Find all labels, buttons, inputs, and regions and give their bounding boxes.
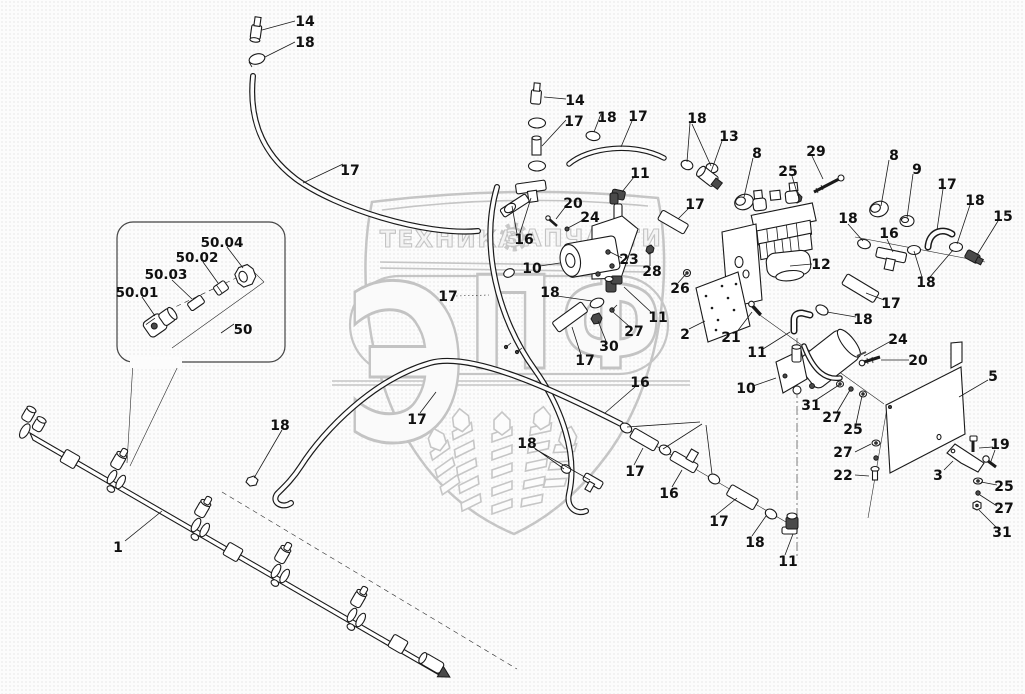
bottom-chain [560,421,798,534]
part-label: 21 [721,330,740,346]
cap-nut-50-04 [233,263,258,288]
parts-diagram-page: ТЕХНИКА ЗАПЧАСТИ Э ПФ [0,0,1025,694]
part-label: 24 [888,332,908,348]
part-label: 18 [597,110,616,126]
part-label: 27 [833,445,852,461]
part-label: 17 [685,197,704,213]
part-label: 24 [580,210,600,226]
part-label: 16 [879,226,898,242]
part-label: 3 [933,468,943,484]
part-label: 10 [736,381,756,397]
part-label: 17 [937,177,956,193]
nut-30 [591,313,602,324]
part-label: 10 [522,261,542,277]
part-label: 27 [994,501,1013,517]
part-label: 17 [625,464,644,480]
part-label: 5 [988,369,998,385]
part-label: 25 [778,164,797,180]
watermark-brand-letter: Э [344,242,467,492]
parts-diagram: ТЕХНИКА ЗАПЧАСТИ Э ПФ [0,0,1025,694]
part-label: 30 [599,339,619,355]
clamp-18b [585,130,600,141]
svg-text:Э: Э [344,242,467,492]
part-label: 2 [680,327,690,343]
part-label: 12 [811,257,830,273]
part-label: 17 [564,114,583,130]
fitting-15 [964,249,984,265]
nut-18j [246,476,258,486]
part-label: 1 [113,540,123,556]
bolt-20b [859,357,880,366]
part-label: 14 [295,14,315,30]
bushing-8b [868,199,891,220]
part-label: 8 [889,148,899,164]
part-label: 18 [838,211,857,227]
part-label: 18 [270,418,289,434]
clamp-18a [248,52,266,66]
part-label: 29 [806,144,825,160]
part-label: 50.02 [176,250,219,266]
tee-16b [873,247,907,273]
bolt-20a [546,216,557,226]
part-label: 9 [912,162,922,178]
part-label: 17 [407,412,426,428]
part-label: 25 [843,422,862,438]
part-label: 11 [648,310,667,326]
part-label: 18 [745,535,764,551]
part-label: 50.04 [201,235,244,251]
watermark-shield-logo: ТЕХНИКА ЗАПЧАСТИ Э ПФ [332,192,690,534]
tube-17f [841,274,879,303]
part-label: 13 [719,129,738,145]
screw-22 [871,467,879,481]
bolt-21 [746,300,764,315]
part-label: 18 [540,285,559,301]
elbow-11c [782,513,798,534]
part-label: 50.01 [116,285,159,301]
bracket-plate-2 [696,224,762,342]
nut-31b [973,501,981,510]
part-label: 23 [619,252,638,268]
part-label: 16 [659,486,678,502]
part-label: 11 [747,345,766,361]
part-label: 15 [993,209,1012,225]
part-label: 11 [778,554,797,570]
nozzle-body-50-01 [142,304,180,338]
part-label: 18 [517,436,536,452]
part-label: 14 [565,93,585,109]
part-label: 17 [709,514,728,530]
part-label: 28 [642,264,661,280]
part-label: 31 [801,398,820,414]
bracket-3 [947,444,984,472]
part-label: 16 [630,375,649,391]
part-label: 18 [916,275,935,291]
part-label: 17 [575,353,594,369]
inset-part-number-labels: 50.0450.0250.0350.0150 [116,235,253,338]
part-label: 18 [853,312,872,328]
part-label: 20 [908,353,928,369]
part-label: 50.03 [145,267,188,283]
part-label: 11 [630,166,649,182]
part-label: 27 [822,410,841,426]
part-label: 18 [295,35,314,51]
fitting-14a [250,16,263,42]
part-label: 17 [340,163,359,179]
part-label: 26 [670,281,689,297]
part-label: 17 [628,109,647,125]
part-label: 25 [994,479,1013,495]
part-label: 18 [687,111,706,127]
part-label: 16 [514,232,533,248]
part-label: 18 [965,193,984,209]
pump-10 [776,325,865,394]
part-label: 50 [234,322,253,338]
bushing-8a [733,192,756,213]
part-label: 27 [624,324,643,340]
part-label: 19 [990,437,1009,453]
part-label: 17 [881,296,900,312]
part-label: 31 [992,525,1011,541]
bolt-29 [814,175,844,193]
part-label: 17 [438,289,457,305]
part-label: 22 [833,468,852,484]
part-label: 8 [752,146,762,162]
fitting-stack [500,83,548,218]
